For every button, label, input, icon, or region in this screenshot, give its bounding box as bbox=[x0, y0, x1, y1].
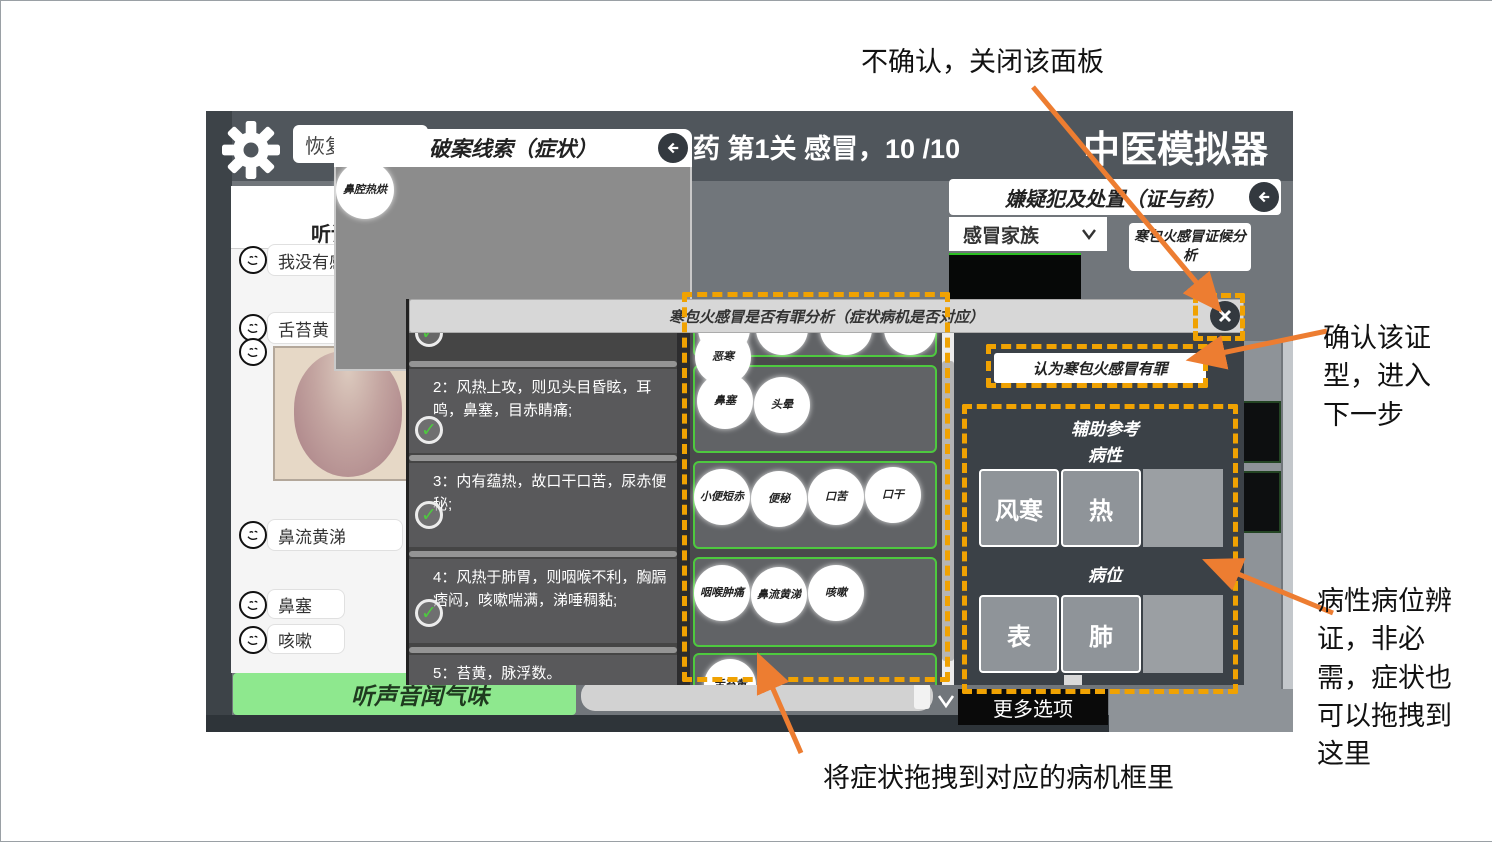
family-dropdown-value: 感冒家族 bbox=[963, 221, 1039, 248]
back-arrow-icon bbox=[1255, 188, 1273, 206]
highlight-dropzones bbox=[682, 292, 950, 682]
patient-avatar bbox=[239, 246, 267, 274]
check-icon: ✓ bbox=[415, 599, 443, 627]
chat-message-text: 鼻塞 bbox=[278, 592, 312, 617]
settings-button[interactable] bbox=[222, 121, 280, 179]
chat-message-text: 舌苔黄 bbox=[278, 316, 329, 341]
highlight-close-button bbox=[1193, 293, 1245, 341]
bottom-right-tray bbox=[1109, 689, 1293, 732]
list-divider bbox=[409, 551, 677, 557]
pathogenesis-item: 2：风热上攻，则见头目昏眩，耳鸣，鼻塞，目赤睛痛; bbox=[409, 369, 677, 453]
pathogenesis-item: 5：苔黄，脉浮数。 bbox=[409, 655, 677, 685]
highlight-aux-area bbox=[962, 404, 1238, 694]
highlight-verdict-button bbox=[986, 344, 1208, 388]
chat-message: 鼻流黄涕 bbox=[267, 519, 403, 551]
pathogenesis-item-text: 4：风热于肺胃，则咽喉不利，胸膈痞闷，咳嗽喘满，涕唾稠黏; bbox=[433, 569, 666, 609]
annotation-close: 不确认，关闭该面板 bbox=[861, 43, 1104, 81]
annotation-drag: 将症状拖拽到对应的病机框里 bbox=[823, 759, 1174, 797]
suspect-back-button[interactable] bbox=[1249, 182, 1279, 212]
level-title: 药 第1关 感冒，10 /10 bbox=[693, 127, 960, 166]
annotation-aux: 病性病位辨证，非必需，症状也可以拖拽到这里 bbox=[1317, 582, 1455, 774]
app-title: 中医模拟器 bbox=[1083, 119, 1268, 173]
left-dark-edge bbox=[206, 111, 232, 732]
suspect-panel-title: 嫌疑犯及处置（证与药） bbox=[1005, 183, 1225, 212]
face-icon bbox=[243, 250, 263, 270]
patient-avatar bbox=[239, 591, 267, 619]
more-options-chevron[interactable] bbox=[936, 693, 956, 709]
chat-message: 鼻塞 bbox=[267, 589, 345, 619]
chat-message: 咳嗽 bbox=[267, 624, 345, 654]
face-icon bbox=[243, 595, 263, 615]
chevron-down-icon bbox=[936, 693, 956, 709]
syndrome-analysis-label: 寒包火感冒证候分析 bbox=[1129, 228, 1251, 266]
scrollbar-end-cap[interactable] bbox=[914, 683, 930, 709]
chat-message-text: 咳嗽 bbox=[278, 627, 312, 652]
patient-avatar bbox=[239, 626, 267, 654]
clue-symptom-circle[interactable]: 鼻腔热烘 bbox=[336, 161, 394, 219]
gear-icon bbox=[222, 166, 280, 183]
list-divider bbox=[409, 647, 677, 653]
clue-panel-title: 破案线索（症状） bbox=[429, 133, 597, 163]
face-icon bbox=[243, 525, 263, 545]
pathogenesis-item-text: 5：苔黄，脉浮数。 bbox=[433, 665, 561, 682]
syndrome-analysis-button[interactable]: 寒包火感冒证候分析 bbox=[1129, 223, 1251, 271]
pathogenesis-item-text: 3：内有蕴热，故口干口苦，尿赤便秘; bbox=[433, 473, 666, 513]
annotation-confirm: 确认该证型，进入下一步 bbox=[1323, 319, 1457, 434]
face-icon bbox=[243, 630, 263, 650]
face-icon bbox=[243, 342, 263, 362]
family-dropdown[interactable]: 感冒家族 bbox=[949, 217, 1107, 251]
pathogenesis-item: 4：风热于肺胃，则咽喉不利，胸膈痞闷，咳嗽喘满，涕唾稠黏; bbox=[409, 559, 677, 643]
list-divider bbox=[409, 361, 677, 367]
chat-message-text: 鼻流黄涕 bbox=[278, 523, 346, 548]
chevron-down-icon bbox=[1081, 228, 1097, 240]
patient-avatar bbox=[239, 338, 267, 366]
pathogenesis-item: 3：内有蕴热，故口干口苦，尿赤便秘; bbox=[409, 463, 677, 547]
clue-symptom-label: 鼻腔热烘 bbox=[343, 184, 387, 197]
check-icon: ✓ bbox=[415, 501, 443, 529]
suspect-panel-header: 嫌疑犯及处置（证与药） bbox=[949, 179, 1281, 215]
pathogenesis-list: ✓ 2：风热上攻，则见头目昏眩，耳鸣，鼻塞，目赤睛痛; ✓ 3：内有蕴热，故口干… bbox=[409, 333, 677, 685]
more-options-label: 更多选项 bbox=[993, 693, 1073, 722]
clue-back-button[interactable] bbox=[658, 133, 688, 163]
back-arrow-icon bbox=[664, 139, 682, 157]
more-options-button[interactable]: 更多选项 bbox=[958, 689, 1108, 725]
pathogenesis-item-text: 2：风热上攻，则见头目昏眩，耳鸣，鼻塞，目赤睛痛; bbox=[433, 379, 651, 419]
check-icon: ✓ bbox=[415, 416, 443, 444]
screenshot-canvas: 恢复 药 第1关 感冒，10 /10 中医模拟器 听诊 我没有感 舌苔黄 bbox=[0, 0, 1492, 842]
list-divider bbox=[409, 455, 677, 461]
bottom-scrollbar[interactable] bbox=[581, 681, 933, 711]
clue-panel-header: 破案线索（症状） bbox=[334, 129, 692, 167]
right-scroll-track[interactable] bbox=[1283, 341, 1293, 691]
face-icon bbox=[243, 318, 263, 338]
patient-avatar bbox=[239, 521, 267, 549]
